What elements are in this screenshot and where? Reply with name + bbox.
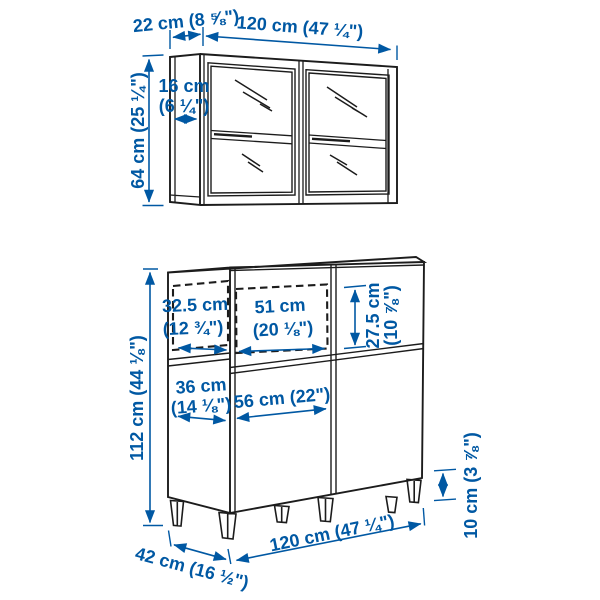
base-inner-height-label-in: (10 ⅞") <box>381 285 401 346</box>
dim-base-leg-height: 10 cm (3 ⅞") <box>434 432 481 539</box>
wall-cabinet-right-glass-door <box>306 70 389 195</box>
dim-arrow <box>173 34 201 37</box>
base-inner-width-label-cm: 51 cm <box>254 295 306 318</box>
dimension-diagram-page: 22 cm (8 ⅝") 120 cm (47 ¼") 64 cm (25 ¼"… <box>0 0 600 600</box>
dim-wall-inner-depth: 16 cm (6 ¼") <box>158 76 209 119</box>
base-depth-label: 42 cm (16 ½") <box>133 543 251 592</box>
dim-base-height: 112 cm (44 ⅛") <box>127 269 163 526</box>
dim-base-inner-width: 51 cm (20 ⅛") <box>239 295 325 352</box>
furniture-dimensions-diagram: 22 cm (8 ⅝") 120 cm (47 ¼") 64 cm (25 ¼"… <box>0 0 600 600</box>
dim-base-depth: 42 cm (16 ½") <box>133 531 251 593</box>
wall-inner-depth-label-cm: 16 cm <box>158 76 209 96</box>
base-leg-height-label: 10 cm (3 ⅞") <box>461 432 481 539</box>
wall-cabinet-left-glass-door <box>208 63 295 196</box>
dim-base-inner-height: 27.5 cm (10 ⅞") <box>344 282 401 348</box>
dim-extension-ticks <box>434 469 456 500</box>
dim-base-door-width: 36 cm (14 ⅛") <box>170 374 232 420</box>
base-door-width-label-in: (14 ⅛") <box>170 394 232 418</box>
base-inner-height-label-cm: 27.5 cm <box>363 282 383 348</box>
dim-base-inner-depth: 32.5 cm (12 ¾") <box>162 294 229 350</box>
base-inner-depth-label-in: (12 ¾") <box>162 317 223 339</box>
wall-inner-depth-label-in: (6 ¼") <box>159 96 210 116</box>
glass-reflection-lines <box>235 80 367 175</box>
wall-width-label: 120 cm (47 ¼") <box>236 12 364 41</box>
dim-base-front-width: 56 cm (22") <box>233 384 331 418</box>
wall-height-label: 64 cm (25 ¼") <box>128 72 148 189</box>
base-height-label: 112 cm (44 ⅛") <box>127 335 147 461</box>
dim-arrow <box>178 416 226 420</box>
base-inner-width-label-in: (20 ⅛") <box>252 317 314 340</box>
dim-extension-ticks <box>423 508 424 526</box>
dim-arrow <box>206 36 391 50</box>
base-inner-depth-label-cm: 32.5 cm <box>162 294 229 316</box>
dim-wall-depth: 22 cm (8 ⅝") <box>132 6 240 49</box>
base-front-width-label: 56 cm (22") <box>233 384 331 412</box>
wall-depth-label: 22 cm (8 ⅝") <box>132 6 240 36</box>
